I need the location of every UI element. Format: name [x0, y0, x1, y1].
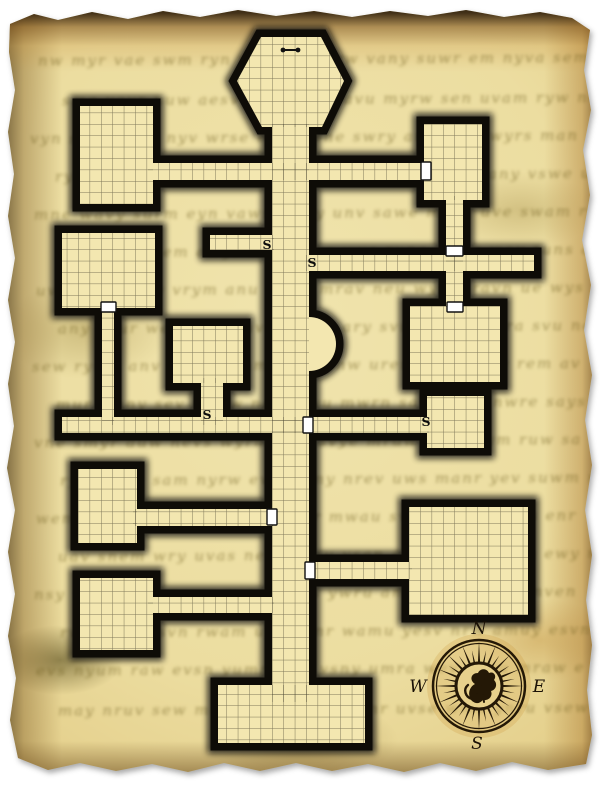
compass-label-south: S — [471, 734, 483, 754]
door-marker — [421, 162, 431, 180]
dungeon-map: SSSSNWES — [0, 0, 600, 787]
grid-corridor-main — [272, 124, 309, 702]
grid-corridor-top — [148, 163, 426, 180]
grid-room-right-small — [427, 396, 484, 448]
grid-room-center-left — [173, 326, 243, 383]
secret-door-label: S — [307, 255, 316, 270]
compass-rose: NWES — [409, 619, 546, 754]
door-marker — [303, 417, 313, 433]
compass-label-north: N — [471, 619, 488, 639]
grid-corridor-long — [62, 417, 429, 433]
page: nw myr vae swm ryn wav emsy rw vany suwr… — [0, 0, 600, 787]
compass-label-east: E — [532, 677, 546, 697]
grid-room-bottom-left-upper — [78, 469, 137, 543]
door-marker — [101, 302, 116, 312]
door-marker — [305, 562, 315, 579]
compass-label-west: W — [409, 677, 428, 697]
door-marker — [447, 302, 463, 312]
grid-room-right-mid — [410, 306, 500, 382]
secret-door-label: S — [202, 407, 211, 422]
grid-room-bottom-right — [409, 507, 528, 615]
door-marker — [267, 509, 277, 525]
parchment: nw myr vae swm ryn wav emsy rw vany suwr… — [0, 0, 600, 787]
grid-corridor-bottom-right — [306, 562, 412, 579]
grid-corridor-bl-lower — [148, 597, 274, 613]
grid-corridor-bl-upper — [133, 509, 274, 526]
grid-room-top-left — [80, 106, 153, 204]
door-marker — [446, 246, 463, 256]
grid-corridor-right-upper — [306, 255, 534, 271]
grid-corridor-left-down — [102, 305, 114, 425]
secret-door-label: S — [421, 414, 430, 429]
grid-room-bottom-left-lower — [80, 578, 153, 650]
secret-door-label: S — [262, 237, 271, 252]
grid-room-top-right — [424, 124, 482, 200]
grid-room-left-mid — [62, 233, 155, 308]
